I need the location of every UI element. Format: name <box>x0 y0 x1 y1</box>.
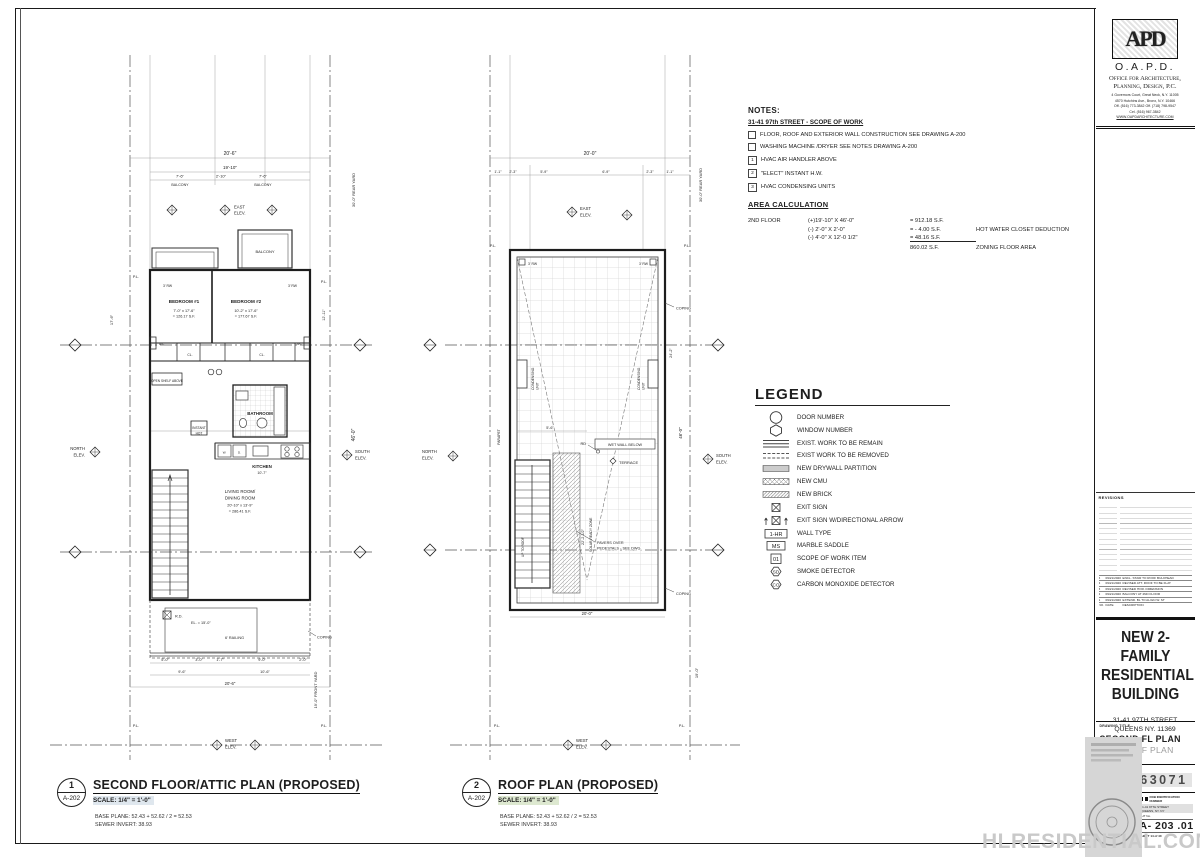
plan2-terrace-label: TERRACE <box>619 460 638 465</box>
plan1-rw-right: 3' RW <box>288 284 298 288</box>
scope-of-work-icon: 01 <box>755 552 797 565</box>
legend-label: CARBON MONOXIDE DETECTOR <box>797 581 895 588</box>
plan1-dim-inner: 19'-10" <box>223 165 237 170</box>
revisions-label: REVISIONS <box>1099 495 1192 500</box>
plan1-second-floor-drawing: 20'-6" 19'-10" 7'-6" 2'-10" 7'-6" BALCON… <box>15 25 420 770</box>
plan1-bedroom1-dim: 7'-0" x 17'-6" <box>173 309 195 313</box>
legend-label: EXIST. WORK TO BE REMAIN <box>797 440 883 447</box>
revision-header-row: NO.DATEDESCRIPTION <box>1099 602 1192 607</box>
dob-id-label: DOB IDENTIFICATION NUMBER <box>1150 795 1193 803</box>
plan2-parapet-label: PARAPET <box>497 429 501 445</box>
plan2-dim-s4: 6'-9" <box>602 170 610 174</box>
plan1-bedroom2-label: BEDROOM #2 <box>231 299 262 304</box>
area-note <box>976 235 1093 242</box>
note-item: 3 HVAC CONDENSING UNITS <box>748 183 1058 192</box>
plan1-living-dim: 20'-10" x 13'-9" <box>227 504 253 508</box>
area-note: ZONING FLOOR AREA <box>976 245 1093 251</box>
plan1-detail-sheet: A-202 <box>58 793 85 805</box>
plan2-pavers-label2: PEDESTALS - SEE DWG. <box>597 547 641 551</box>
plan1-living-area: = 286.41 S.F. <box>229 510 252 514</box>
plan1-scale: SCALE: 1/4" = 1'-0" <box>93 796 154 805</box>
plan1-dim-seg1: 7'-6" <box>176 174 185 179</box>
legend-item: NEW CMU <box>755 475 975 488</box>
smoke-detector-icon: SD <box>755 565 797 578</box>
marble-saddle-icon: MS <box>755 539 797 552</box>
note-number-box: 1 <box>748 156 757 165</box>
plan2-title-bar: 2 A-202 ROOF PLAN (PROPOSED) SCALE: 1/4"… <box>462 778 658 807</box>
plan2-stair <box>515 460 550 588</box>
plan1-dryer-label: D. <box>238 451 241 455</box>
plan1-sewer-invert: SEWER INVERT: 38.93 <box>95 821 192 829</box>
plan2-west-elev-label: WEST <box>576 738 589 743</box>
titleblock-blank <box>1096 129 1195 492</box>
plan1-bdim5: 2'-0" <box>299 658 307 662</box>
plan1-washer-label: W. <box>223 451 227 455</box>
plan2-detail-number: 2 <box>463 779 490 793</box>
legend-item: CO CARBON MONOXIDE DETECTOR <box>755 578 975 591</box>
cmu-icon <box>755 475 797 488</box>
checkbox-icon <box>748 131 756 139</box>
firm-monogram: APD <box>1125 26 1164 52</box>
plan2-rw-right: 3' RW <box>639 262 649 266</box>
plan1-pl-bottom-left: P.L. <box>133 724 139 728</box>
plan2-dim-total: 20'-0" <box>584 151 597 157</box>
plan1-ac-left: A/C <box>159 342 165 346</box>
plan2-dim-s3: 5'-9" <box>540 170 548 174</box>
brick-icon <box>755 488 797 501</box>
svg-text:1-HR: 1-HR <box>770 532 783 538</box>
firm-identity: APD O.A.P.D. Office for Architecture, Pl… <box>1096 8 1195 129</box>
plan1-rw-left: 3' RW <box>163 284 173 288</box>
note-number-box: 3 <box>748 183 757 192</box>
legend-block: LEGEND DOOR NUMBER WINDOW NUMBER EXIST. … <box>755 386 975 591</box>
plan2-wet-wall-label: WET WALL BELOW <box>608 443 643 447</box>
plan1-ac-right: A/C <box>297 342 303 346</box>
door-number-icon <box>755 411 797 424</box>
plan2-stair-label: UP TO ROOF <box>521 537 525 557</box>
plan2-dim-bottom: 20'-0" <box>582 611 593 616</box>
plan1-bdim4: 9'-0" <box>258 658 266 662</box>
area-note: HOT WATER CLOSET DEDUCTION <box>976 227 1093 233</box>
plan2-condensing-label1b: UNIT <box>536 382 540 390</box>
plan1-north-elev-label: NORTH <box>70 446 85 451</box>
firm-initials: O.A.P.D. <box>1096 61 1195 73</box>
note-text: HVAC CONDENSING UNITS <box>761 184 835 190</box>
legend-item: 01 SCOPE OF WORK ITEM <box>755 552 975 565</box>
plan1-bathroom-label: BATHROOM <box>247 411 273 416</box>
plan1-property-lines <box>50 55 385 760</box>
plan1-dim-12-11: 12'-11" <box>322 309 326 321</box>
plan2-detail-bubble: 2 A-202 <box>462 778 491 807</box>
wall-type-icon: 1-HR <box>755 527 797 540</box>
plan1-extension-lines <box>130 55 330 687</box>
plan2-rw-left: 3' RW <box>528 262 538 266</box>
plan1-datum-notes: BASE PLANE: 52.43 + 52.62 / 2 = 52.53 SE… <box>95 813 192 830</box>
plan1-coping-label: COPING <box>317 636 332 640</box>
legend-item: WINDOW NUMBER <box>755 424 975 437</box>
plan1-closet-label2: CL. <box>259 353 264 357</box>
plan1-terrace <box>150 600 316 658</box>
plan2-dim-s5: 2'-3" <box>646 170 654 174</box>
svg-text:MS: MS <box>772 544 781 550</box>
legend-label: WINDOW NUMBER <box>797 427 853 434</box>
plan1-bedroom2-area: = 177.67 S.F. <box>235 315 258 319</box>
area-value: = 912.18 S.F. <box>910 218 976 224</box>
svg-text:SD: SD <box>773 570 780 575</box>
plan1-south-elev-label: SOUTH <box>355 449 370 454</box>
plan2-sewer-invert: SEWER INVERT: 38.93 <box>500 821 597 829</box>
plan2-condensing-label2a: CONDENSING <box>637 367 641 390</box>
area-note <box>976 218 1093 224</box>
pl2-rd-label: RD <box>581 442 587 446</box>
legend-item: EXIT SIGN W/DIRECTIONAL ARROW <box>755 514 975 527</box>
plan1-living-label2: DINING ROOM <box>225 496 256 501</box>
plan1-instant-hot-label2: HOT <box>196 432 203 436</box>
plan1-pl-bottom-right: P.L. <box>321 724 327 728</box>
title-block: APD O.A.P.D. Office for Architecture, Pl… <box>1096 8 1195 844</box>
area-value: = - 4.00 S.F. <box>910 227 976 233</box>
legend-label: EXIT SIGN W/DIRECTIONAL ARROW <box>797 517 903 524</box>
legend-label: MARBLE SADDLE <box>797 542 849 549</box>
note-item: 1 HVAC AIR HANDLER ABOVE <box>748 156 1058 165</box>
plan2-dim-s6: 1'-1" <box>666 170 674 174</box>
drywall-partition-icon <box>755 462 797 475</box>
drawing-title-label: DRAWING TITLE <box>1100 724 1191 728</box>
sheet-number-label: SHT No. <box>1140 814 1193 818</box>
plan2-detail-sheet: A-202 <box>463 793 490 805</box>
area-table: 2ND FLOOR (+)19'-10" X 46'-0" = 912.18 S… <box>748 218 1093 251</box>
plan1-bdim8: 20'-6" <box>225 681 236 686</box>
plan2-pl-top-left: P.L. <box>490 244 496 248</box>
note-text: "ELECT" INSTANT H.W. <box>761 171 823 177</box>
plan2-coping-label-top: COPING <box>676 307 691 311</box>
legend-item: SD SMOKE DETECTOR <box>755 565 975 578</box>
plan2-dim-s1: 1'-1" <box>494 170 502 174</box>
plan1-bdim7: 10'-6" <box>260 670 270 674</box>
plan2-hatch-zone <box>553 453 580 593</box>
dob-id-row: DOB IDENTIFICATION NUMBER <box>1140 795 1193 803</box>
plan2-east-elev-label2: ELEV. <box>580 213 592 218</box>
plan2-pl-top-right: P.L. <box>684 244 690 248</box>
plan1-dim-total: 20'-6" <box>224 151 237 157</box>
area-calculation-block: AREA CALCULATION 2ND FLOOR (+)19'-10" X … <box>748 200 1093 251</box>
legend-label: SMOKE DETECTOR <box>797 568 855 575</box>
project-title: NEW 2-FAMILY RESIDENTIAL BUILDING <box>1100 629 1189 705</box>
area-formula: (+)19'-10" X 46'-0" <box>808 218 910 224</box>
plan1-front-yard-label: 19'-0" FRONT YARD <box>313 671 318 708</box>
exist-remain-icon <box>755 437 797 450</box>
plan2-pl-bottom-right: P.L. <box>679 724 685 728</box>
legend-label: NEW CMU <box>797 478 827 485</box>
firm-contact: 4 Governors Court, Great Neck, N.Y. 1100… <box>1096 93 1195 120</box>
area-formula: (-) 4'-0" X 12'-0 1/2" <box>808 235 910 242</box>
plan1-pl-top-right: P.L. <box>321 280 327 284</box>
note-text: WASHING MACHINE /DRYER SEE NOTES DRAWING… <box>760 144 917 150</box>
plan1-open-shelf-label: OPEN SHELF ABOVE <box>151 379 183 383</box>
svg-text:CO: CO <box>773 582 780 587</box>
plan2-dim-46: 46'-0" <box>678 427 683 439</box>
plan1-closet-label: CL. <box>187 353 192 357</box>
plan1-dim-seg2: 2'-10" <box>216 174 227 179</box>
black-square-icon <box>1145 797 1149 801</box>
area-floor-label: 2ND FLOOR <box>748 218 808 224</box>
plan1-west-elev-label2: ELEV. <box>225 745 237 750</box>
plan1-bdim2: 3'-0" <box>195 658 203 662</box>
plan1-bdim1: 5'-0" <box>161 658 169 662</box>
plan2-dim-24: 24'-2" <box>669 348 673 358</box>
legend-title: LEGEND <box>755 386 950 406</box>
plan1-detail-number: 1 <box>58 779 85 793</box>
exit-sign-icon <box>755 501 797 514</box>
note-number-box: 2 <box>748 169 757 178</box>
legend-item: MS MARBLE SADDLE <box>755 539 975 552</box>
plan2-west-elev-label2: ELEV. <box>576 745 588 750</box>
plan2-rear-yard-label: 30'-0" REAR YARD <box>698 168 703 202</box>
plan1-bdim3: 1'-7" <box>216 658 224 662</box>
plan1-section-diamonds <box>69 339 366 750</box>
plan1-stair <box>152 470 188 598</box>
legend-label: SCOPE OF WORK ITEM <box>797 555 866 562</box>
plan1-balcony-room-label: BALCONY <box>255 249 274 254</box>
plan1-bedroom1-label: BEDROOM #1 <box>169 299 200 304</box>
plan1-bdim6: 9'-6" <box>178 670 186 674</box>
plan1-detail-bubble: 1 A-202 <box>57 778 86 807</box>
window-number-icon <box>755 424 797 437</box>
plan2-coping-leader-top <box>665 303 674 307</box>
plan1-base-plane: BASE PLANE: 52.43 + 52.62 / 2 = 52.53 <box>95 813 192 821</box>
plan2-east-elev-label: EAST <box>580 206 591 211</box>
plan2-coping-label-bottom: COPING <box>676 592 691 596</box>
firm-website: WWW.OAPDARCHITECTURE.COM <box>1096 115 1195 120</box>
plan2-base-plane: BASE PLANE: 52.43 + 52.62 / 2 = 52.53 <box>500 813 597 821</box>
plan2-datum-notes: BASE PLANE: 52.43 + 52.62 / 2 = 52.53 SE… <box>500 813 597 830</box>
plan1-roof-drain-label: R.D. <box>175 615 183 619</box>
note-text: HVAC AIR HANDLER ABOVE <box>761 157 837 163</box>
plan1-kitchen-label: KITCHEN <box>252 464 272 469</box>
legend-item: DOOR NUMBER <box>755 411 975 424</box>
legend-label: DOOR NUMBER <box>797 414 844 421</box>
legend-item: EXIT SIGN <box>755 501 975 514</box>
plan2-condensing-label1a: CONDENSING <box>531 367 535 390</box>
stamp-address: 31-41 97TH STREET QUEENS, NY. NY <box>1140 804 1193 813</box>
notes-title: NOTES: <box>748 106 1058 115</box>
plan1-west-elev-label: WEST <box>225 738 238 743</box>
plan1-rear-yard-label: 30'-0" REAR YARD <box>351 173 356 207</box>
legend-label: EXIST WORK TO BE REMOVED <box>797 452 889 459</box>
plan1-dim-46: 46'-0" <box>351 428 357 441</box>
notes-block: NOTES: 31-41 97th STREET - SCOPE OF WORK… <box>748 106 1058 192</box>
area-title: AREA CALCULATION <box>748 200 1093 209</box>
plan2-coping-leader-bottom <box>665 588 674 592</box>
legend-label: NEW BRICK <box>797 491 832 498</box>
plan1-instant-hot-label1: INSTANT <box>192 426 205 430</box>
note-item: WASHING MACHINE /DRYER SEE NOTES DRAWING… <box>748 143 1058 151</box>
project-identity: NEW 2-FAMILY RESIDENTIAL BUILDING 31-41 … <box>1096 620 1195 722</box>
plan2-condensing-label2b: UNIT <box>642 382 646 390</box>
plan2-dim-5-6: 5'-6" <box>546 426 554 430</box>
plan2-south-elev-label: SOUTH <box>716 453 731 458</box>
plan2-dim-19: 19'-0" <box>694 667 699 678</box>
note-item: 2 "ELECT" INSTANT H.W. <box>748 169 1058 178</box>
legend-item: NEW DRYWALL PARTITION <box>755 462 975 475</box>
plan1-dim-seg3: 7'-6" <box>259 174 268 179</box>
legend-label: EXIT SIGN <box>797 504 828 511</box>
plan1-balcony-label-right: BALCONY <box>254 183 272 187</box>
checkbox-icon <box>748 143 756 151</box>
plan1-pl-top-left: P.L. <box>133 275 139 279</box>
area-formula: (-) 2'-0" X 2'-0" <box>808 227 910 233</box>
plan1-bedroom1-area: = 126.17 S.F. <box>173 315 196 319</box>
area-total: 860.02 S.F. <box>910 245 976 251</box>
revisions-empty-rows <box>1099 503 1192 575</box>
plan2-title: ROOF PLAN (PROPOSED) <box>498 778 658 794</box>
plan1-title: SECOND FLOOR/ATTIC PLAN (PROPOSED) <box>93 778 360 794</box>
plan1-south-elev-label2: ELEV. <box>355 456 367 461</box>
plan1-appliances <box>218 445 303 458</box>
co-detector-icon: CO <box>755 578 797 591</box>
plan2-scale: SCALE: 1/4" = 1'-0" <box>498 796 559 805</box>
plan1-kitchen-dim: 10'-7" <box>257 471 267 475</box>
plan1-title-bar: 1 A-202 SECOND FLOOR/ATTIC PLAN (PROPOSE… <box>57 778 360 807</box>
notes-subtitle: 31-41 97th STREET - SCOPE OF WORK <box>748 119 1058 126</box>
plan1-dim-17-6: 17'-6" <box>109 314 114 325</box>
plan2-south-elev-label2: ELEV. <box>716 460 728 465</box>
plan1-east-elev-label: EAST <box>234 205 245 210</box>
legend-label: WALL TYPE <box>797 530 831 537</box>
plan1-bedroom2-dim: 10'-2" x 17'-6" <box>234 309 258 313</box>
svg-text:01: 01 <box>773 557 779 563</box>
plan1-detectors <box>208 369 222 375</box>
legend-item: EXIST. WORK TO BE REMAIN <box>755 437 975 450</box>
plan2-dim-s2: 2'-3" <box>509 170 517 174</box>
plan1-east-elev-label2: ELEV. <box>234 211 246 216</box>
legend-item: 1-HR WALL TYPE <box>755 527 975 540</box>
firm-name: Office for Architecture, Planning, Desig… <box>1096 75 1195 91</box>
watermark: HLRESIDENTIAL.COM <box>982 830 1200 854</box>
plan1-balcony-label-left: BALCONY <box>171 183 189 187</box>
plan2-solar-label: SOLAR READY ZONE <box>589 517 593 552</box>
exit-sign-arrow-icon <box>755 514 797 527</box>
legend-item: EXIST WORK TO BE REMOVED <box>755 450 975 463</box>
plan2-east-elev-markers <box>567 207 632 220</box>
plan2-north-elev-label: NORTH <box>422 449 437 454</box>
area-value: = 48.16 S.F. <box>910 235 976 242</box>
plan1-north-elev-label2: ELEV. <box>74 453 86 458</box>
note-item: FLOOR, ROOF AND EXTERIOR WALL CONSTRUCTI… <box>748 131 1058 139</box>
plan1-el-label: EL. = 15'-0" <box>191 621 211 625</box>
plan2-dim-22: 22'-2 1/2" <box>581 528 585 545</box>
plan2-roof-drawing: 20'-0" 1'-1" 2'-3" 5'-9" 6'-9" 2'-3" 1'-… <box>420 25 750 770</box>
revisions-block: REVISIONS 509/21/2020ENCL. STAIR TO ROOF… <box>1096 492 1195 620</box>
firm-logo: APD <box>1112 19 1178 59</box>
legend-label: NEW DRYWALL PARTITION <box>797 465 877 472</box>
plan1-window-markers <box>167 205 277 215</box>
legend-item: NEW BRICK <box>755 488 975 501</box>
note-text: FLOOR, ROOF AND EXTERIOR WALL CONSTRUCTI… <box>760 132 965 138</box>
plan2-pl-bottom-left: P.L. <box>494 724 500 728</box>
plan1-living-label1: LIVING ROOM/ <box>225 489 256 494</box>
plan2-pavers-label1: PAVERS OVER <box>597 541 624 545</box>
plan2-north-elev-label2: ELEV. <box>422 456 434 461</box>
exist-removed-icon <box>755 449 797 462</box>
plan1-railing-label: 6' RAILING <box>225 636 244 640</box>
